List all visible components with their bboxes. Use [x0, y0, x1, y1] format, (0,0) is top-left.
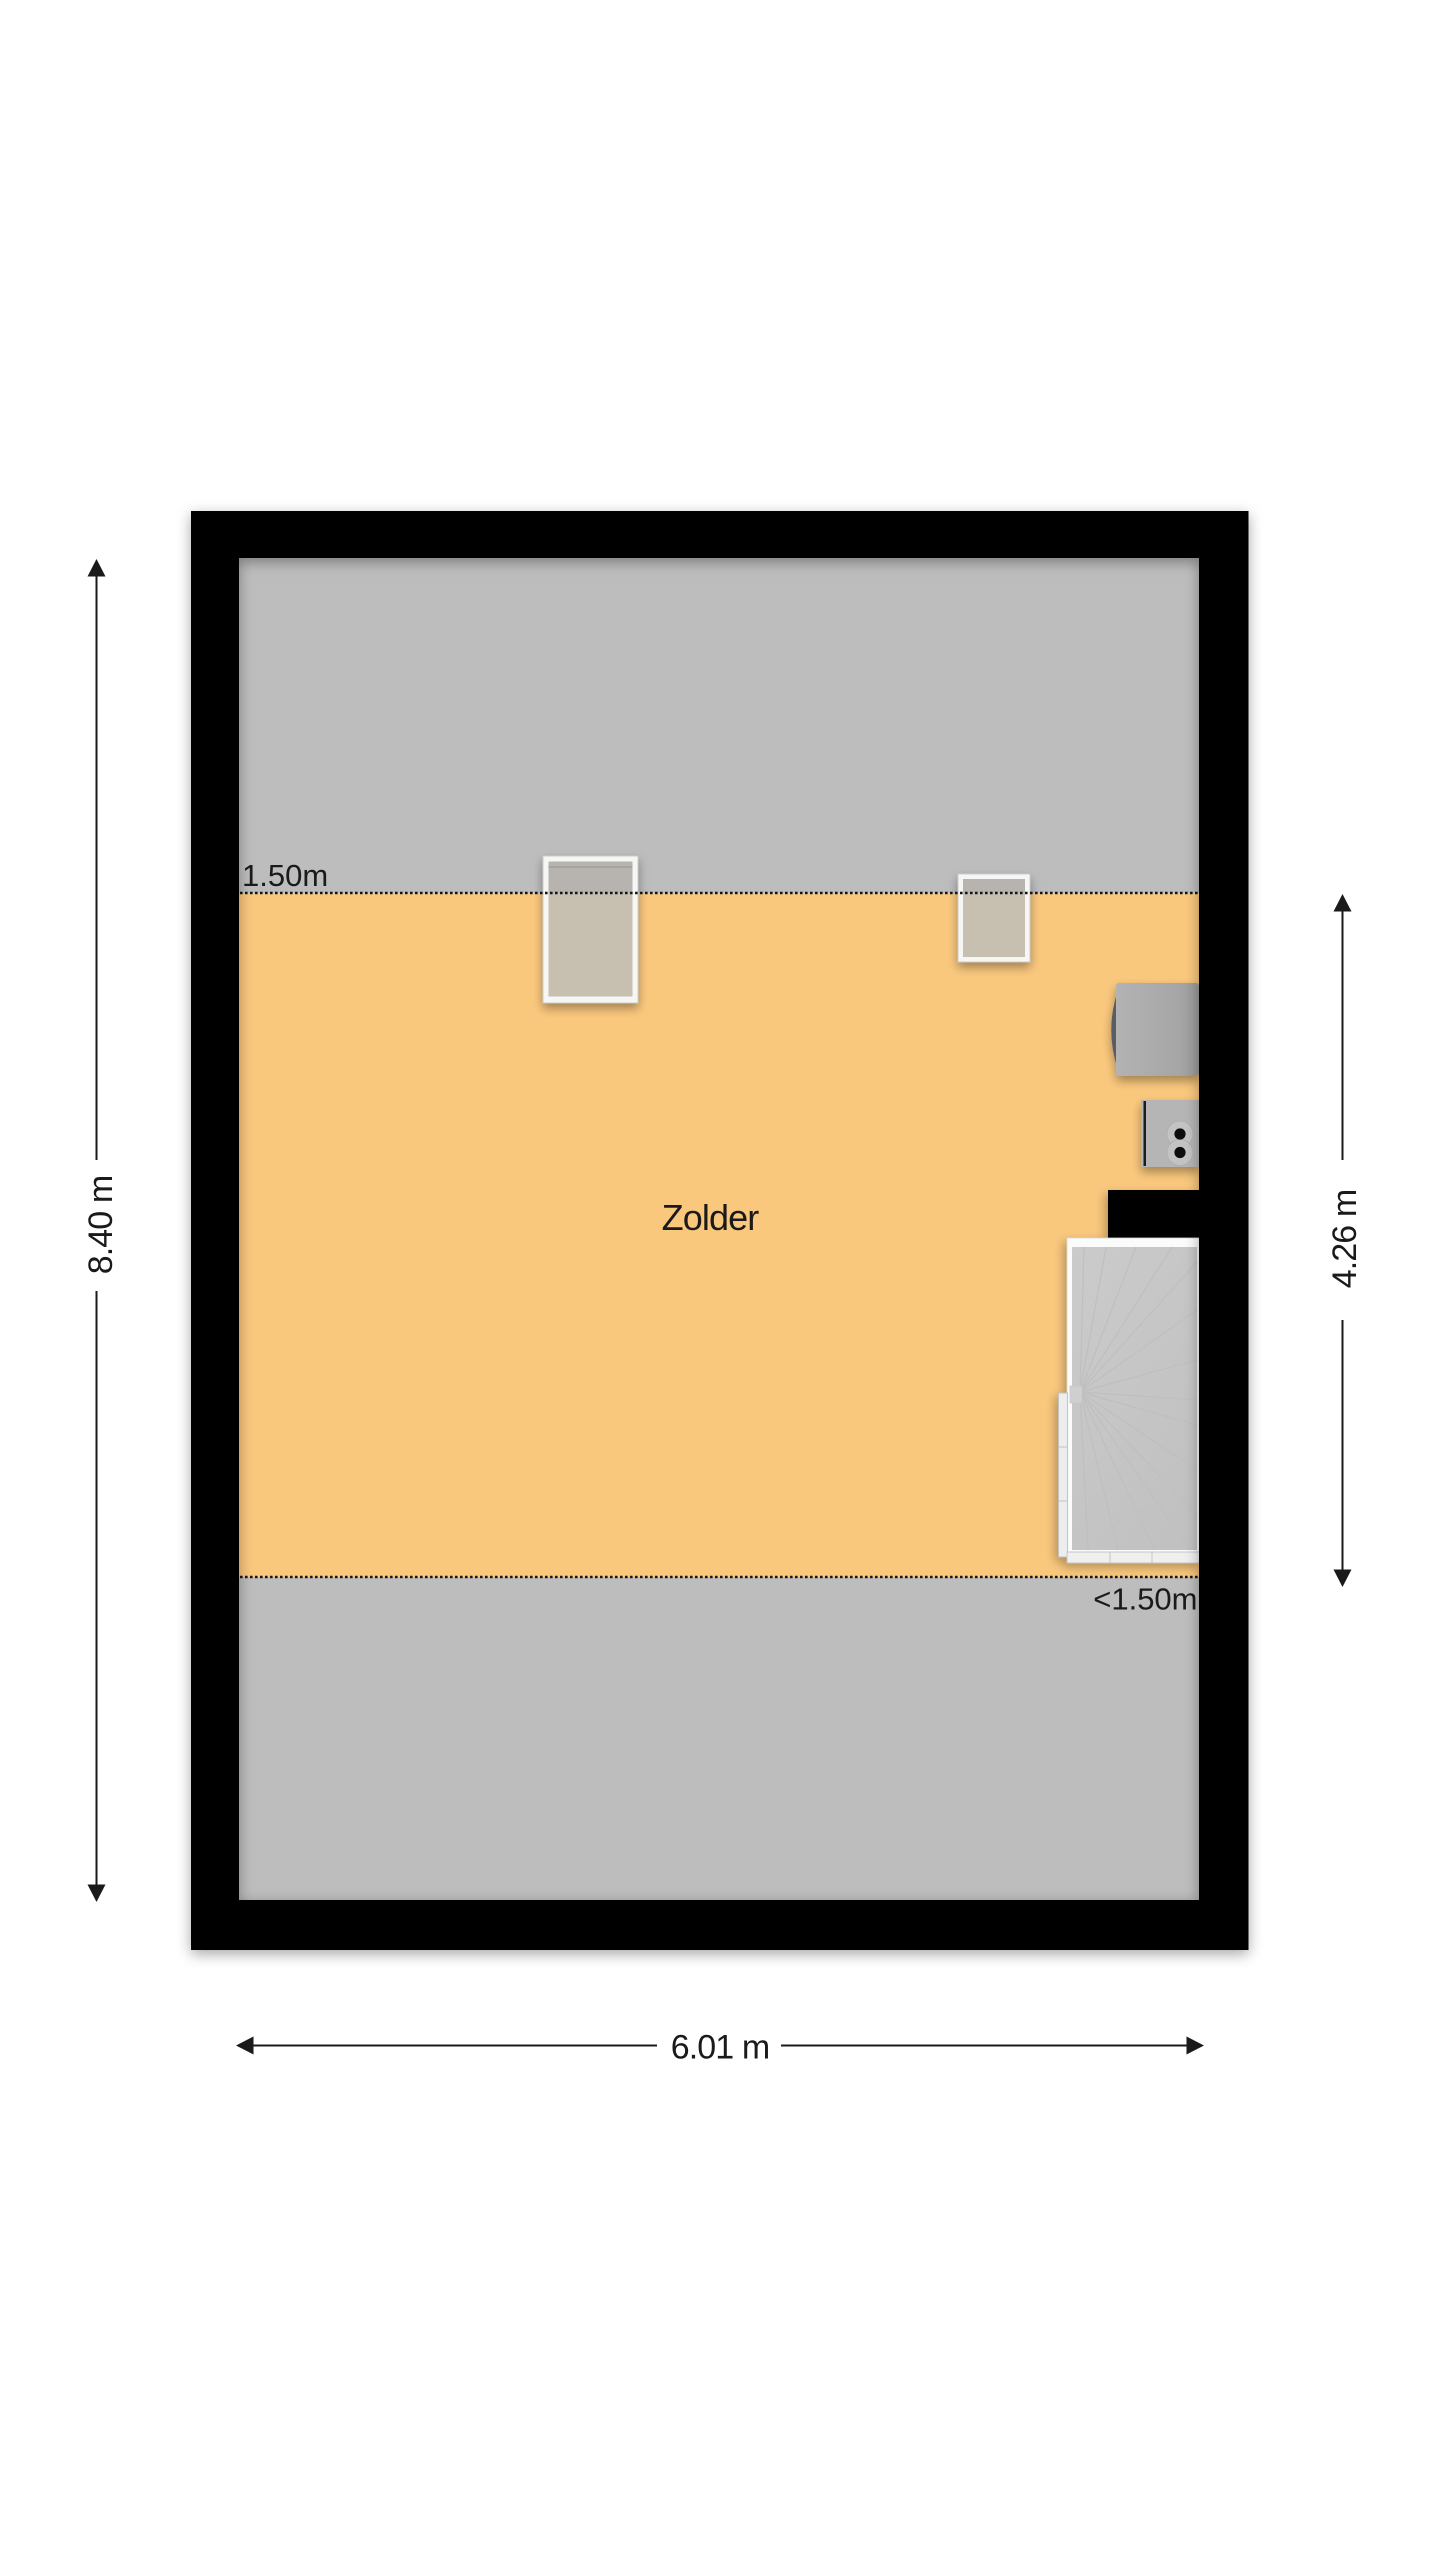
- svg-text:1.50m: 1.50m: [242, 858, 328, 893]
- svg-text:6.01 m: 6.01 m: [671, 2029, 770, 2067]
- svg-text:<1.50m: <1.50m: [1093, 1582, 1197, 1617]
- svg-text:Zolder: Zolder: [662, 1197, 760, 1238]
- svg-text:4.26 m: 4.26 m: [1326, 1190, 1364, 1289]
- svg-text:8.40 m: 8.40 m: [82, 1176, 120, 1275]
